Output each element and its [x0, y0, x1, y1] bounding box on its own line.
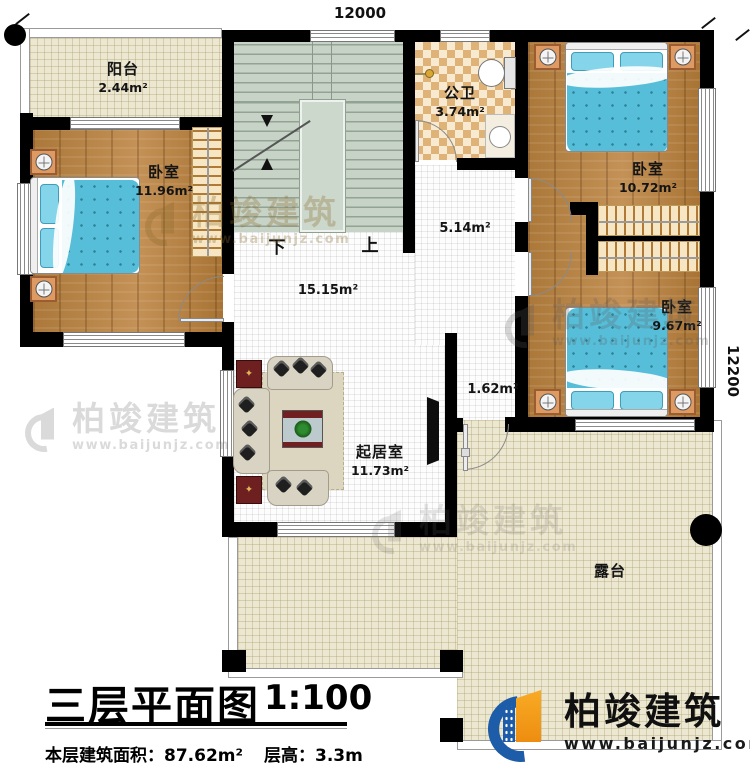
terrace-floor-left: [238, 537, 457, 668]
brand-url: www.baijunjz.com: [564, 734, 750, 753]
column-circle: [690, 514, 722, 546]
dimension-tick: [701, 17, 716, 29]
wall-segment: [222, 347, 234, 370]
terrace-railing-bottom-left: [228, 668, 463, 678]
room-area: 10.72m²: [619, 180, 677, 196]
toilet-tank: [504, 57, 516, 89]
nightstand: [669, 389, 696, 415]
room-name: 公卫: [435, 84, 484, 104]
wall-segment: [222, 30, 234, 274]
door-leaf: [415, 120, 419, 162]
room-name: 卧室: [652, 298, 701, 318]
room-name: 卧室: [135, 163, 193, 183]
brand-logo-icon: [488, 686, 554, 760]
stair-treads: [345, 102, 403, 232]
floor-plan-canvas: 12000 12200: [0, 0, 750, 775]
bed-headboard: [566, 409, 667, 416]
wall-segment: [222, 30, 310, 42]
pillow: [620, 391, 663, 410]
watermark-logo-icon: [25, 406, 63, 450]
wall-segment: [222, 322, 234, 347]
wall-segment: [222, 457, 234, 537]
watermark-brand: 柏竣建筑: [72, 402, 230, 435]
room-area: 3.74m²: [435, 104, 484, 120]
window: [698, 88, 716, 192]
wardrobe-rod: [599, 221, 699, 223]
stair-stringer-line: [312, 42, 313, 100]
window: [63, 332, 185, 347]
room-area: 11.73m²: [351, 463, 409, 479]
room-area: 9.67m²: [652, 318, 701, 334]
nightstand: [669, 44, 696, 70]
watermark-url: www.baijunjz.com: [72, 438, 230, 453]
wall-segment: [395, 30, 440, 42]
room-area: 11.96m²: [135, 183, 193, 199]
wall-segment: [403, 30, 415, 253]
watermark: 柏竣建筑 www.baijunjz.com: [25, 402, 230, 453]
room-name: 露台: [594, 562, 626, 582]
wall-segment: [515, 296, 528, 417]
column-circle: [4, 24, 26, 46]
side-table: [236, 476, 262, 504]
hall-upper-floor: [415, 165, 515, 345]
plan-scale: 1:100: [264, 678, 372, 718]
room-label-bedroom2: 卧室 10.72m²: [619, 160, 677, 196]
room-label-bedroom1: 卧室 11.96m²: [135, 163, 193, 199]
wardrobe: [192, 127, 222, 257]
title-rule-thin: [45, 728, 347, 729]
column-square: [440, 650, 463, 672]
title-rule: [45, 722, 347, 726]
balcony-railing-top: [20, 28, 222, 38]
door-leaf: [180, 318, 224, 322]
bed: [30, 177, 140, 274]
nightstand: [534, 44, 561, 70]
hall-side-floor: [457, 333, 515, 423]
door-knob-icon: [425, 69, 434, 78]
floor-height-info: 层高：3.3m: [264, 741, 363, 766]
wall-segment: [700, 192, 714, 287]
toilet-icon: [478, 59, 505, 87]
room-label-living: 起居室 11.73m²: [351, 443, 409, 479]
wardrobe: [598, 205, 700, 236]
hall-area-side: 1.62m²: [467, 382, 518, 397]
wardrobe: [598, 241, 700, 272]
bed-headboard: [566, 43, 667, 50]
room-label-terrace: 露台: [594, 562, 626, 582]
stair-arrow-up-icon: [261, 158, 273, 170]
bed-headboard: [31, 178, 38, 273]
door-leaf: [528, 252, 532, 296]
balcony-door-window: [70, 117, 180, 130]
wall-segment: [515, 170, 528, 178]
lamp-icon: [539, 49, 556, 66]
window: [277, 522, 395, 537]
wall-segment: [445, 333, 457, 537]
wall-segment: [700, 30, 714, 88]
nightstand: [30, 276, 57, 302]
bed: [565, 42, 668, 152]
wall-segment: [395, 522, 457, 537]
brand-name: 柏竣建筑: [564, 693, 750, 730]
lamp-icon: [674, 49, 691, 66]
door-handle-icon: [461, 448, 470, 457]
dimension-top: 12000: [320, 4, 400, 22]
dimension-right: 12200: [724, 340, 742, 402]
lamp-icon: [35, 154, 52, 171]
room-name: 阳台: [98, 60, 147, 80]
hall-area-main: 15.15m²: [298, 283, 358, 298]
room-area: 2.44m²: [98, 80, 147, 96]
stair-stringer-line: [331, 42, 332, 100]
wardrobe-rod: [207, 128, 209, 256]
nightstand: [30, 149, 57, 175]
stair-arrow-down-icon: [261, 115, 273, 127]
nightstand: [534, 389, 561, 415]
column-square: [440, 718, 463, 742]
column-square: [222, 650, 246, 672]
pillow: [571, 391, 614, 410]
lamp-icon: [35, 281, 52, 298]
hall-area-upper: 5.14m²: [439, 221, 490, 236]
coffee-table: [282, 410, 323, 448]
window: [575, 419, 695, 431]
stair-down-label: 下: [269, 233, 286, 258]
dimension-tick: [15, 13, 30, 25]
wall-segment: [33, 117, 70, 130]
dimension-tick: [735, 29, 750, 41]
plant-icon: [294, 421, 311, 438]
window: [220, 370, 234, 457]
side-table: [236, 360, 262, 388]
room-name: 卧室: [619, 160, 677, 180]
stair-treads: [234, 44, 403, 102]
wardrobe-rod: [599, 257, 699, 259]
room-label-bedroom3: 卧室 9.67m²: [652, 298, 701, 334]
stair-void: [300, 100, 345, 232]
sink-icon: [489, 126, 511, 148]
terrace-railing-left: [228, 537, 238, 668]
wall-segment: [586, 202, 598, 275]
door-leaf: [528, 178, 532, 222]
stair-up-label: 上: [362, 231, 379, 256]
tv-icon: [427, 397, 439, 465]
brand-logo: 柏竣建筑 www.baijunjz.com: [488, 686, 750, 760]
wall-segment: [515, 30, 528, 170]
window: [440, 30, 490, 42]
floor-area-info: 本层建筑面积：87.62m²: [45, 741, 243, 766]
lamp-icon: [674, 394, 691, 411]
wall-segment: [515, 222, 528, 252]
room-label-bathroom: 公卫 3.74m²: [435, 84, 484, 120]
window: [310, 30, 395, 42]
room-name: 起居室: [351, 443, 409, 463]
lamp-icon: [539, 394, 556, 411]
room-label-balcony: 阳台 2.44m²: [98, 60, 147, 96]
wall-segment: [20, 332, 63, 347]
